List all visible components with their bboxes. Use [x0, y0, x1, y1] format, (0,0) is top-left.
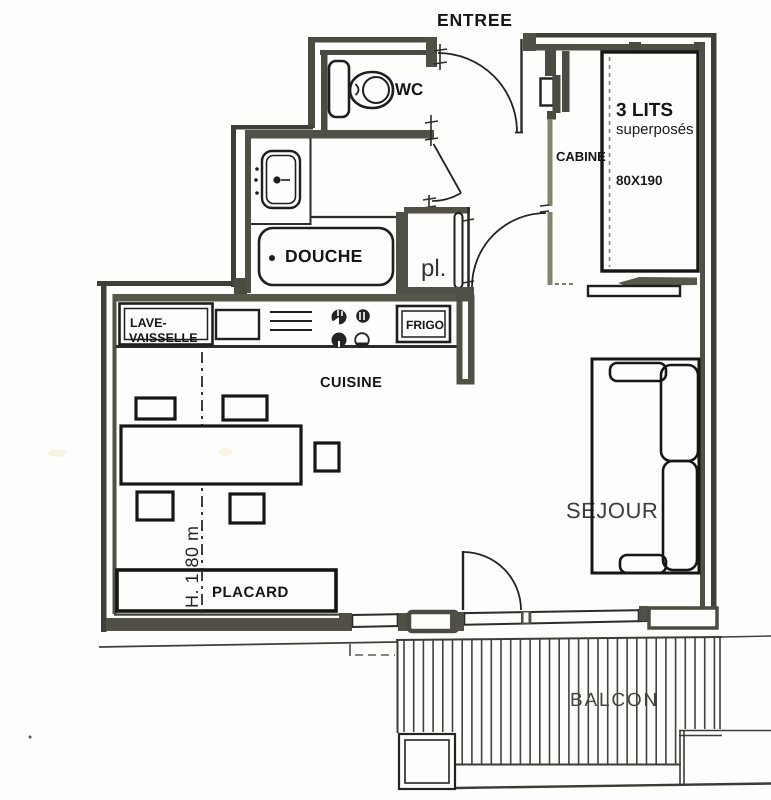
svg-text:pl.: pl.: [421, 255, 446, 282]
svg-text:WC: WC: [395, 80, 423, 99]
svg-text:BALCON: BALCON: [570, 690, 659, 711]
svg-text:DOUCHE: DOUCHE: [285, 246, 363, 266]
svg-text:80X190: 80X190: [616, 173, 663, 188]
svg-text:PLACARD: PLACARD: [212, 584, 289, 601]
svg-text:CABINE: CABINE: [556, 149, 606, 164]
svg-text:LAVE-: LAVE-: [130, 316, 167, 330]
svg-text:superposés: superposés: [616, 121, 694, 138]
svg-text:SEJOUR: SEJOUR: [566, 498, 658, 523]
svg-text:3 LITS: 3 LITS: [616, 100, 673, 121]
svg-text:VAISSELLE: VAISSELLE: [129, 331, 198, 345]
svg-text:ENTREE: ENTREE: [437, 10, 513, 30]
svg-text:CUISINE: CUISINE: [320, 375, 382, 391]
svg-text:FRIGO: FRIGO: [406, 318, 444, 332]
svg-text:H. 1.80 m: H. 1.80 m: [182, 525, 202, 608]
